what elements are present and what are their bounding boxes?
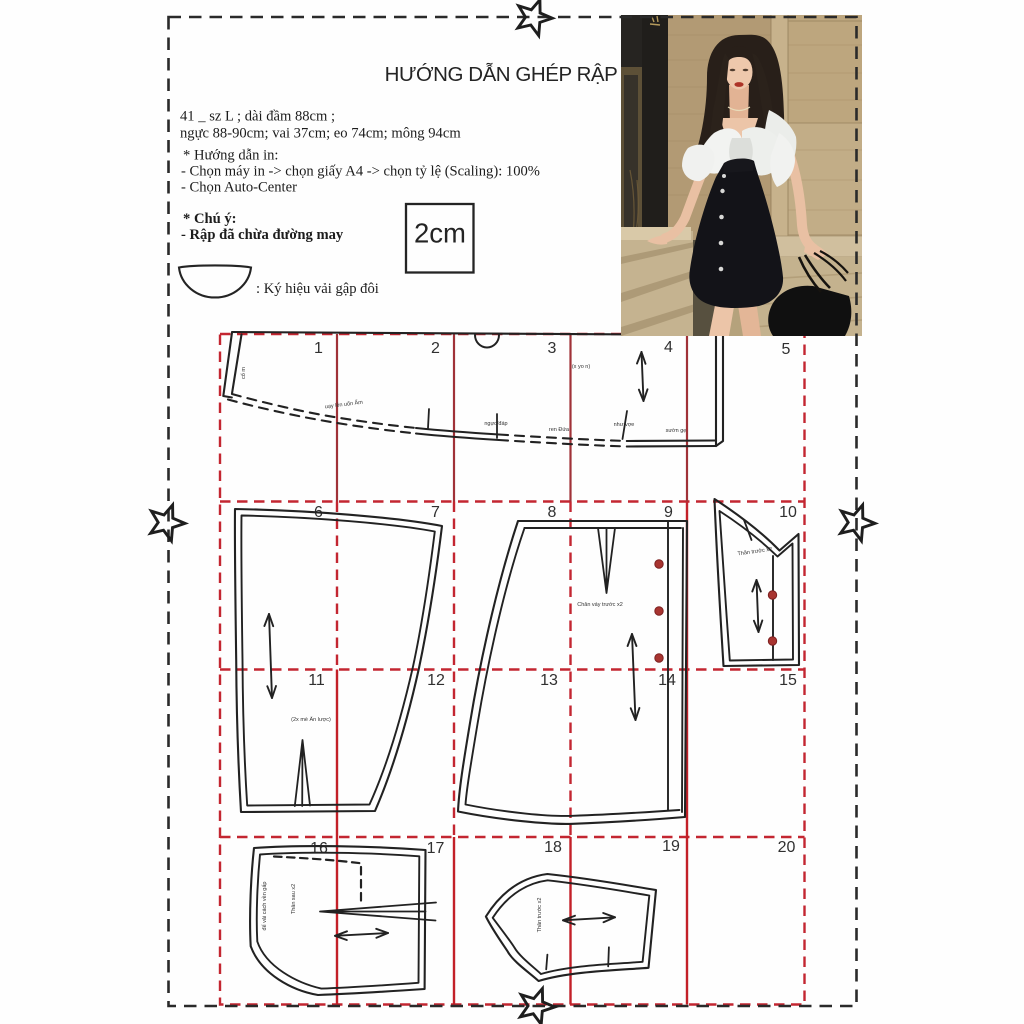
svg-text:11: 11: [308, 672, 325, 689]
svg-text:20: 20: [778, 839, 796, 856]
svg-text:Chân váy trước x2: Chân váy trước x2: [577, 602, 623, 608]
svg-text:Thân trước x2: Thân trước x2: [537, 898, 543, 933]
svg-text:ngực/đáp: ngực/đáp: [484, 421, 507, 427]
svg-text:41 _ sz L ; dài đầm 88cm ;: 41 _ sz L ; dài đầm 88cm ;: [180, 109, 335, 125]
svg-text:* Hướng dẫn in:: * Hướng dẫn in:: [183, 148, 278, 164]
svg-text:ren Đứa: ren Đứa: [549, 427, 570, 433]
svg-text:Thân sau x2: Thân sau x2: [291, 884, 297, 914]
svg-text:10: 10: [779, 504, 797, 521]
svg-text:15: 15: [779, 672, 797, 689]
svg-text:9: 9: [664, 504, 673, 521]
svg-text:4: 4: [664, 339, 673, 356]
svg-text:12: 12: [427, 672, 445, 689]
svg-text:* Chú ý:: * Chú ý:: [183, 211, 237, 227]
svg-text:(x yo n): (x yo n): [572, 364, 591, 370]
svg-text:5: 5: [782, 341, 791, 358]
svg-text:như vợe: như vợe: [614, 422, 635, 428]
svg-text:17: 17: [427, 840, 445, 857]
svg-text:(2x mè Ẩn lược): (2x mè Ẩn lược): [291, 716, 331, 723]
svg-text:: Ký hiệu vải gập đôi: : Ký hiệu vải gập đôi: [256, 281, 379, 297]
svg-text:13: 13: [540, 672, 558, 689]
svg-text:- Chọn Auto-Center: - Chọn Auto-Center: [181, 180, 297, 196]
svg-text:8: 8: [548, 504, 557, 521]
svg-text:18: 18: [544, 839, 562, 856]
svg-text:19: 19: [662, 838, 680, 855]
svg-text:3: 3: [548, 340, 557, 357]
svg-text:sườn gẹ: sườn gẹ: [666, 428, 687, 434]
svg-text:7: 7: [431, 504, 440, 521]
svg-text:cổ m: cổ m: [240, 367, 247, 379]
svg-text:2: 2: [431, 340, 440, 357]
svg-text:ngực 88-90cm; vai 37cm; eo 74c: ngực 88-90cm; vai 37cm; eo 74cm; mông 94…: [180, 126, 461, 142]
svg-text:- Rập đã chừa đường may: - Rập đã chừa đường may: [181, 227, 344, 243]
svg-text:2cm: 2cm: [414, 218, 466, 249]
svg-text:HƯỚNG DẪN GHÉP RẬP: HƯỚNG DẪN GHÉP RẬP: [385, 63, 618, 86]
svg-text:để vải cách vền gấp: để vải cách vền gấp: [261, 882, 268, 931]
svg-text:16: 16: [310, 840, 328, 857]
svg-text:- Chọn máy in -> chọn giấy A4: - Chọn máy in -> chọn giấy A4 -> chọn tỷ…: [181, 164, 540, 180]
svg-text:1: 1: [314, 340, 323, 357]
